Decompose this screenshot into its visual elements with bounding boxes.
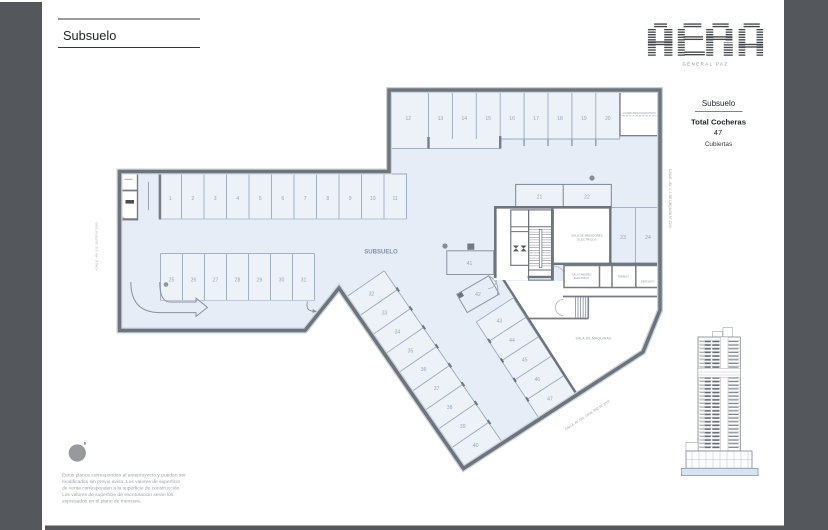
svg-text:32: 32 <box>369 291 375 297</box>
svg-text:11: 11 <box>393 196 398 202</box>
svg-text:38: 38 <box>447 405 453 411</box>
svg-text:17: 17 <box>533 116 539 122</box>
svg-text:28: 28 <box>235 278 241 284</box>
svg-text:45: 45 <box>522 357 528 363</box>
svg-text:34: 34 <box>395 329 401 335</box>
svg-text:41: 41 <box>467 261 473 267</box>
svg-text:15: 15 <box>485 116 491 122</box>
svg-text:24: 24 <box>645 235 651 241</box>
svg-text:Total Cocheras: Total Cocheras <box>691 118 746 127</box>
svg-text:47: 47 <box>714 128 722 137</box>
svg-text:40: 40 <box>473 443 479 449</box>
svg-text:35: 35 <box>408 348 414 354</box>
svg-text:18: 18 <box>557 116 563 122</box>
svg-text:42: 42 <box>475 292 481 298</box>
svg-text:COCHERA PARA DISCAPACITADOS: COCHERA PARA DISCAPACITADOS <box>623 111 656 115</box>
svg-text:25: 25 <box>169 278 175 284</box>
svg-text:33: 33 <box>382 310 388 316</box>
svg-text:ELECTRICO: ELECTRICO <box>574 276 589 280</box>
svg-text:47: 47 <box>547 396 553 402</box>
svg-text:expresados en el plano de mens: expresados en el plano de mensura. <box>62 498 141 504</box>
svg-text:Subsuelo: Subsuelo <box>702 99 736 108</box>
svg-text:36: 36 <box>421 367 427 373</box>
svg-text:46: 46 <box>534 377 540 383</box>
svg-text:26: 26 <box>191 278 197 284</box>
svg-text:CALLE - AV. J. J. DE URQUIZA N: CALLE - AV. J. J. DE URQUIZA N° 2100 <box>668 169 672 228</box>
svg-text:modificados sin previo aviso.: modificados sin previo aviso. Los valore… <box>62 479 180 485</box>
svg-text:16: 16 <box>509 116 515 122</box>
svg-text:13: 13 <box>438 116 444 122</box>
svg-text:9: 9 <box>349 196 352 202</box>
svg-text:20: 20 <box>605 116 611 122</box>
svg-text:TERMOT.: TERMOT. <box>618 275 630 279</box>
svg-text:14: 14 <box>461 116 467 122</box>
svg-text:29: 29 <box>257 278 263 284</box>
svg-text:7: 7 <box>304 196 307 202</box>
svg-text:43: 43 <box>497 319 503 325</box>
svg-text:2: 2 <box>191 196 194 202</box>
svg-text:23: 23 <box>620 235 626 241</box>
svg-text:GENERAL PAZ: GENERAL PAZ <box>682 62 728 67</box>
svg-text:SALA TABLERO: SALA TABLERO <box>572 273 592 277</box>
svg-text:SALA DE MAQUINAS: SALA DE MAQUINAS <box>576 337 612 341</box>
svg-text:8: 8 <box>326 196 329 202</box>
svg-text:Subsuelo: Subsuelo <box>63 28 116 43</box>
svg-text:4: 4 <box>236 196 239 202</box>
svg-text:39: 39 <box>460 424 466 430</box>
svg-text:37: 37 <box>434 386 440 392</box>
svg-text:DEPOSITO: DEPOSITO <box>641 280 655 284</box>
svg-text:Cubiertas: Cubiertas <box>705 141 732 148</box>
svg-text:1: 1 <box>169 196 172 202</box>
svg-text:ELECTRICOS: ELECTRICOS <box>577 238 596 242</box>
svg-text:44: 44 <box>509 338 515 344</box>
svg-text:de venta corresponden a la sup: de venta corresponden a la superficie de… <box>62 485 181 491</box>
svg-text:5: 5 <box>259 196 262 202</box>
svg-text:CALLE - AV. J. B. JUSTO N° 310: CALLE - AV. J. B. JUSTO N° 3100 <box>95 222 99 269</box>
svg-text:27: 27 <box>213 278 219 284</box>
svg-text:22: 22 <box>584 195 590 201</box>
svg-text:Los valores de superficie de e: Los valores de superficie de escrituraci… <box>62 492 174 498</box>
svg-text:10: 10 <box>370 196 376 202</box>
svg-text:3: 3 <box>214 196 217 202</box>
svg-text:21: 21 <box>537 195 543 201</box>
svg-text:6: 6 <box>281 196 284 202</box>
svg-text:SUBSUELO: SUBSUELO <box>364 249 398 256</box>
svg-text:12: 12 <box>405 116 411 122</box>
svg-text:31: 31 <box>301 278 307 284</box>
svg-text:30: 30 <box>279 278 285 284</box>
svg-text:Estos planos corresponden al a: Estos planos corresponden al anteproyect… <box>62 473 186 479</box>
svg-text:19: 19 <box>581 116 587 122</box>
